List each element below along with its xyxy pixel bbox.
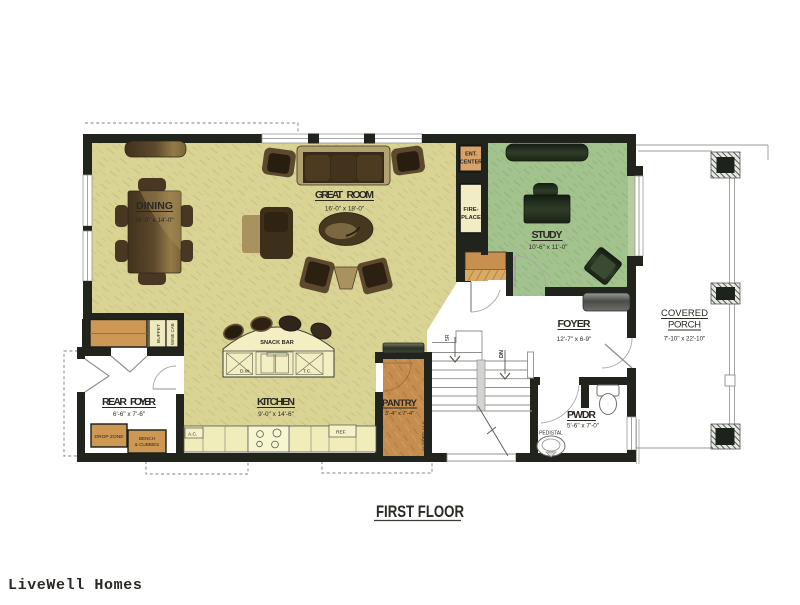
svg-text:3'-4" x 7'-4": 3'-4" x 7'-4"	[385, 411, 414, 417]
svg-text:LiveWell Homes: LiveWell Homes	[8, 577, 142, 594]
svg-text:7'-10" x 22'-10": 7'-10" x 22'-10"	[664, 336, 706, 343]
svg-text:D.W.: D.W.	[240, 369, 250, 375]
svg-text:& CUBBIES: & CUBBIES	[135, 442, 160, 447]
svg-text:PANTRY: PANTRY	[382, 398, 418, 409]
svg-text:16'-0" x 14'-0": 16'-0" x 14'-0"	[134, 217, 173, 224]
svg-text:BENCH: BENCH	[139, 436, 155, 441]
svg-text:COVERED: COVERED	[661, 308, 708, 319]
svg-text:SNACK BAR: SNACK BAR	[260, 340, 294, 346]
svg-text:10'-6" x 11'-0": 10'-6" x 11'-0"	[529, 244, 568, 251]
svg-text:PORCH: PORCH	[668, 320, 701, 331]
svg-text:DN: DN	[499, 350, 505, 358]
svg-text:A.C.: A.C.	[188, 432, 197, 438]
svg-text:T.C.: T.C.	[303, 369, 312, 375]
svg-text:GREAT: GREAT	[315, 189, 344, 201]
svg-text:6'-6" x 7'-6": 6'-6" x 7'-6"	[113, 411, 145, 418]
svg-text:BUFFET: BUFFET	[156, 324, 162, 343]
svg-text:WINE CAB: WINE CAB	[170, 323, 175, 345]
svg-text:PLACE: PLACE	[461, 215, 481, 221]
svg-text:FIRE-: FIRE-	[463, 207, 478, 213]
svg-text:5'-6" x 7'-0": 5'-6" x 7'-0"	[567, 423, 599, 430]
svg-text:PEDISTAL: PEDISTAL	[539, 431, 563, 437]
svg-text:SLOPED CLG.: SLOPED CLG.	[422, 419, 428, 451]
svg-text:12'-7" x 6-9": 12'-7" x 6-9"	[557, 336, 592, 343]
svg-text:DINING: DINING	[136, 200, 173, 212]
svg-text:ENT.: ENT.	[465, 152, 477, 158]
svg-text:DROP ZONE: DROP ZONE	[95, 434, 125, 440]
svg-text:REAR: REAR	[102, 396, 127, 408]
svg-text:REF.: REF.	[336, 430, 346, 436]
svg-text:16'-0" x 18'-0": 16'-0" x 18'-0"	[325, 206, 364, 213]
svg-text:FIRST FLOOR: FIRST FLOOR	[376, 503, 464, 522]
svg-text:PWDR: PWDR	[567, 409, 596, 421]
svg-text:ROOM: ROOM	[347, 189, 375, 201]
svg-text:KITCHEN: KITCHEN	[257, 396, 295, 408]
svg-text:FOYER: FOYER	[130, 396, 156, 408]
svg-text:9'-0" x 14'-6": 9'-0" x 14'-6"	[258, 411, 294, 418]
svg-text:STUDY: STUDY	[532, 229, 563, 241]
svg-text:5R: 5R	[445, 334, 451, 341]
svg-text:CENTER: CENTER	[460, 160, 482, 166]
svg-text:FOYER: FOYER	[558, 318, 591, 330]
